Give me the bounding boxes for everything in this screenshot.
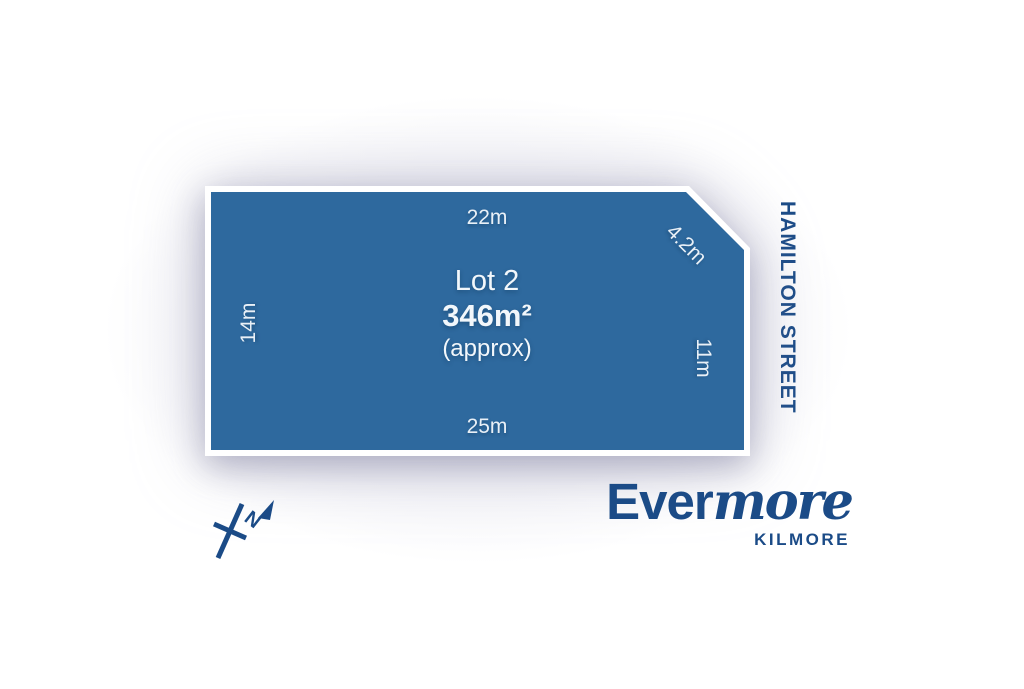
lot-number-label: Lot 2: [362, 264, 612, 298]
lot-area-label: 346m²: [362, 298, 612, 334]
compass-north-letter: N: [240, 507, 265, 533]
dimension-bottom: 25m: [437, 415, 537, 439]
lot-info: Lot 2 346m² (approx): [362, 264, 612, 364]
brand-location-label: KILMORE: [560, 530, 852, 550]
brand-name-primary: Ever: [606, 473, 713, 530]
compass-arrow: [258, 500, 274, 520]
street-name-label: HAMILTON STREET: [775, 201, 799, 453]
brand-logo: Evermore KILMORE: [560, 477, 852, 550]
brand-name-secondary: more: [713, 472, 852, 532]
lot-area-approx-label: (approx): [362, 334, 612, 364]
lot-plan-page: HAMILTON STREET 22m 4.2m 14m 11m 25m Lot…: [0, 0, 1024, 689]
north-compass-icon: N: [200, 492, 284, 576]
lot-plan: 22m 4.2m 14m 11m 25m Lot 2 346m² (approx…: [205, 186, 750, 456]
brand-name: Evermore: [560, 477, 852, 527]
dimension-right: 11m: [691, 333, 715, 383]
dimension-top: 22m: [437, 206, 537, 230]
lot-boundary: 22m 4.2m 14m 11m 25m Lot 2 346m² (approx…: [205, 186, 750, 456]
dimension-left: 14m: [237, 298, 261, 348]
